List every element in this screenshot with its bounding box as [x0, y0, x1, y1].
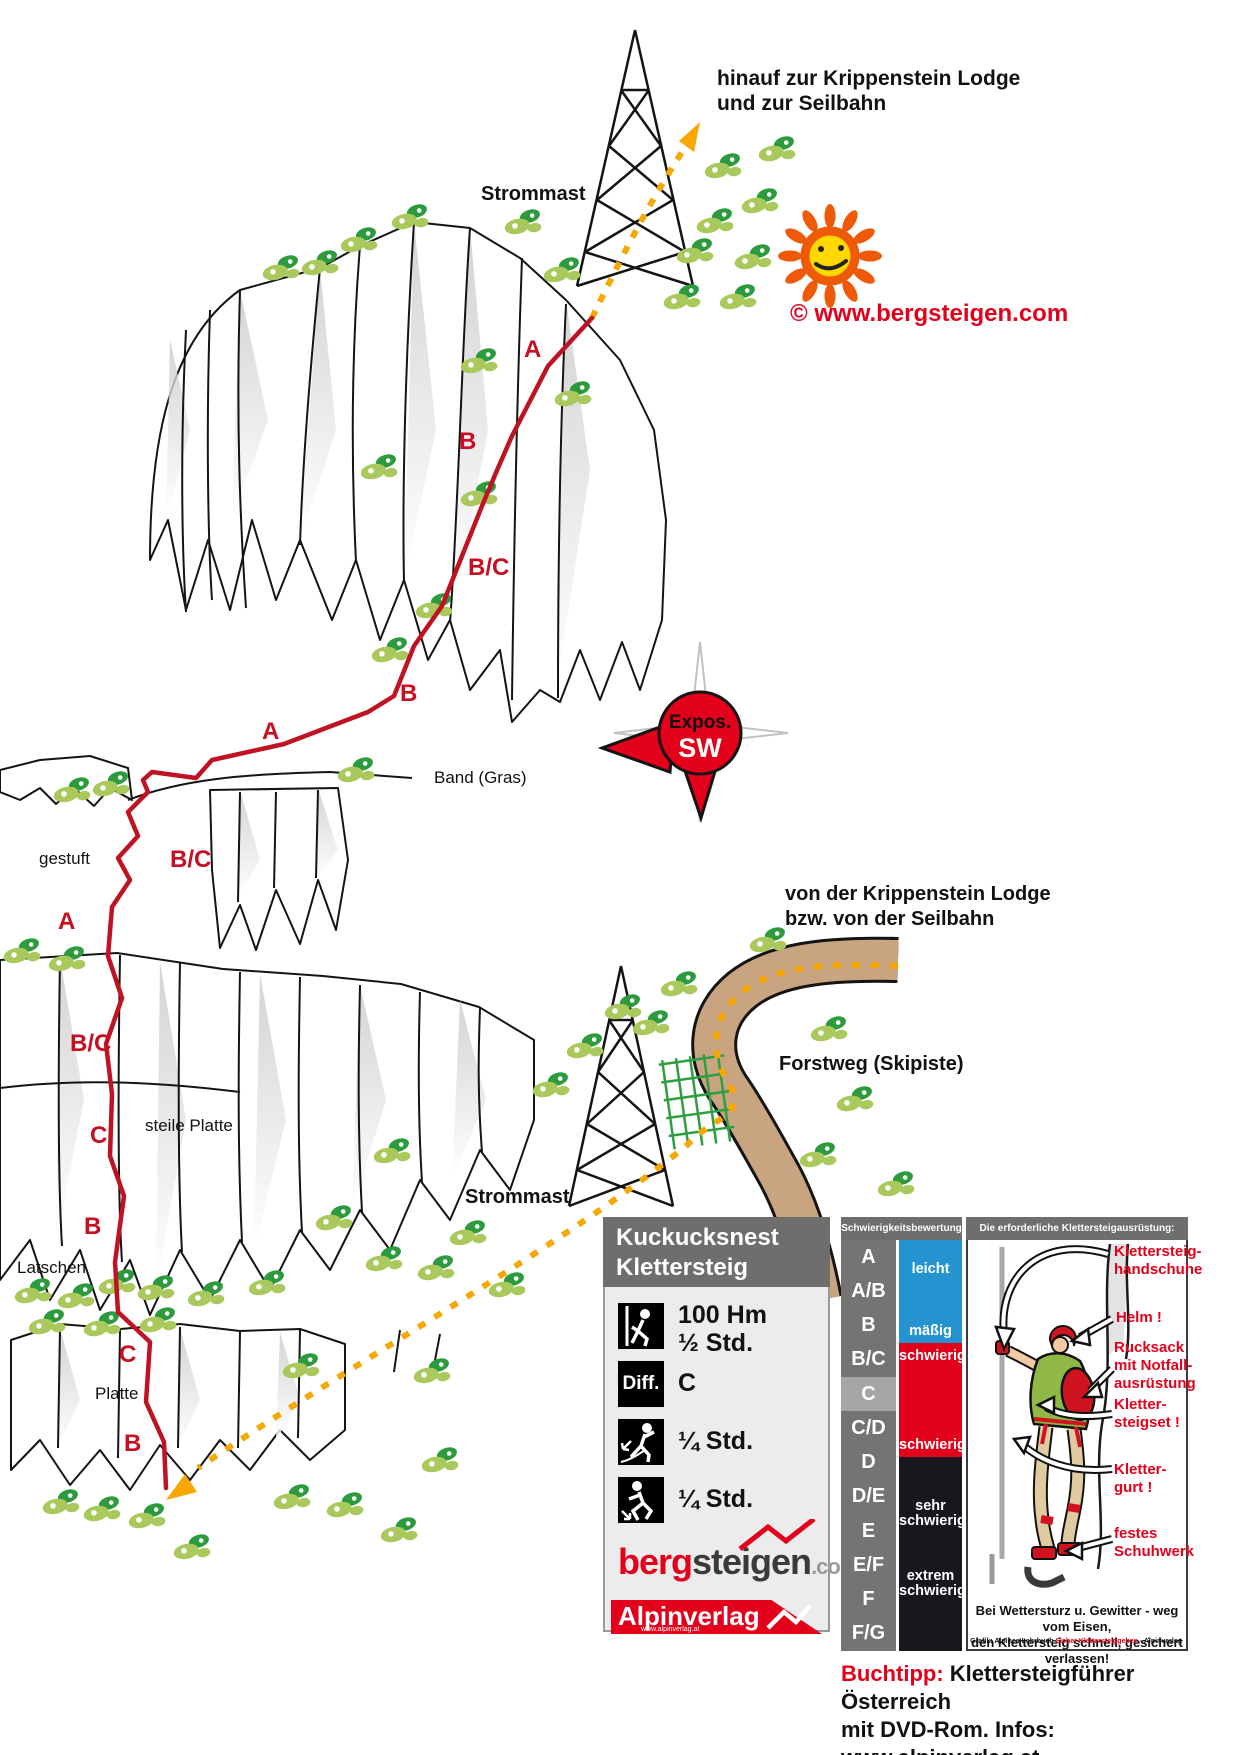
- equipment-callout: Klettersteig- handschuhe: [1114, 1243, 1202, 1279]
- alpinverlag-logo: Alpinverlag www.alpinverlag.at: [611, 1600, 822, 1634]
- compass-direction-value: SW: [659, 733, 741, 764]
- equipment-header: Die erforderliche Klettersteigausrüstung…: [966, 1217, 1188, 1240]
- route-grade-label: B: [459, 428, 476, 456]
- gestuft-label: gestuft: [39, 849, 90, 869]
- equipment-callout: Helm !: [1116, 1309, 1162, 1327]
- route-infobox: Kuckucksnest Klettersteig 100 Hm ½ Std. …: [603, 1217, 830, 1632]
- equipment-callout: Kletter- gurt !: [1114, 1461, 1167, 1497]
- scale-grade-d-e: D/E: [841, 1480, 896, 1514]
- climb-stats-icon: [618, 1303, 664, 1349]
- strommast-top-label: Strommast: [481, 183, 585, 206]
- route-grade-label: A: [262, 718, 279, 746]
- route-grade-label: A: [524, 336, 541, 364]
- stat-climb-value: 100 Hm ½ Std.: [678, 1301, 767, 1357]
- scale-grade-b: B: [841, 1309, 896, 1343]
- scale-band-extreme: sehr schwierig extrem schwierig: [899, 1457, 962, 1651]
- latschen-label: Latschen: [17, 1258, 86, 1278]
- book-tip-label: Buchtipp:: [841, 1661, 944, 1686]
- route-grade-label: B/C: [468, 554, 509, 582]
- bergsteigen-logo: bergsteigen.com: [618, 1541, 858, 1583]
- equipment-panel: Die erforderliche Klettersteigausrüstung…: [966, 1217, 1188, 1651]
- scale-grade-f: F: [841, 1583, 896, 1617]
- direction-top-label: hinauf zur Krippenstein Lodge und zur Se…: [717, 66, 1020, 116]
- stat-row-difficulty: Diff. C: [618, 1361, 818, 1409]
- steile-platte-label: steile Platte: [145, 1116, 233, 1136]
- copyright-text: © www.bergsteigen.com: [790, 300, 1068, 328]
- band-gras-label: Band (Gras): [434, 768, 527, 788]
- weather-warning: Bei Wettersturz u. Gewitter - weg vom Ei…: [970, 1603, 1184, 1667]
- compass-expos-label: Expos.: [659, 712, 741, 734]
- route-grade-label: B/C: [170, 846, 211, 874]
- scale-band-easy: leicht mäßig: [899, 1240, 962, 1343]
- scale-grade-d: D: [841, 1446, 896, 1480]
- stat-row-descent: ¼ Std.: [618, 1477, 818, 1525]
- route-grade-label: A: [58, 908, 75, 936]
- direction-mid-label: von der Krippenstein Lodge bzw. von der …: [785, 882, 1051, 932]
- scale-grade-a: A: [841, 1240, 896, 1274]
- equipment-callout: festes Schuhwerk: [1114, 1525, 1194, 1561]
- scale-grade-e: E: [841, 1514, 896, 1548]
- route-grade-label: B: [84, 1213, 101, 1241]
- topo-page: hinauf zur Krippenstein Lodge und zur Se…: [0, 0, 1246, 1755]
- scale-grade-e-f: E/F: [841, 1548, 896, 1582]
- difficulty-icon: Diff.: [618, 1361, 664, 1407]
- route-grade-label: B: [124, 1430, 141, 1458]
- equipment-callout: Rucksack mit Notfall- ausrüstung: [1114, 1339, 1196, 1393]
- stat-approach-value: ¼ Std.: [678, 1427, 753, 1455]
- forstweg-label: Forstweg (Skipiste): [779, 1053, 963, 1076]
- stat-row-climb: 100 Hm ½ Std.: [618, 1303, 818, 1351]
- climber-illustration: [968, 1242, 1186, 1649]
- scale-grade-a-b: A/B: [841, 1274, 896, 1308]
- stat-difficulty-value: C: [678, 1369, 696, 1397]
- route-grade-label: C: [119, 1341, 136, 1369]
- band-column: leicht mäßig schwierig schwierig sehr sc…: [899, 1240, 962, 1651]
- alpinverlag-mountains-icon: [766, 1602, 826, 1632]
- strommast-bottom-label: Strommast: [465, 1186, 569, 1209]
- scale-band-hard: schwierig schwierig: [899, 1343, 962, 1457]
- stat-row-approach: ¼ Std.: [618, 1419, 818, 1467]
- difficulty-scale-header: Schwierigkeitsbewertung: [841, 1217, 962, 1240]
- scale-grade-c: C: [841, 1377, 896, 1411]
- bergsteigen-logo-mountains-icon: [736, 1519, 826, 1553]
- route-infobox-title: Kuckucksnest Klettersteig: [603, 1217, 830, 1287]
- stat-descent-value: ¼ Std.: [678, 1485, 753, 1513]
- route-grade-label: B: [400, 680, 417, 708]
- grade-column: AA/BBB/CCC/DDD/EEE/FFF/G: [841, 1240, 896, 1651]
- platte-label: Platte: [95, 1384, 138, 1404]
- scale-grade-b-c: B/C: [841, 1343, 896, 1377]
- difficulty-scale-panel: Schwierigkeitsbewertung AA/BBB/CCC/DDD/E…: [841, 1217, 962, 1651]
- route-grade-label: C: [90, 1122, 107, 1150]
- approach-walk-icon: [618, 1419, 664, 1465]
- equipment-callout: Kletter- steigset !: [1114, 1396, 1180, 1432]
- book-tip: Buchtipp: Klettersteigführer Österreich …: [841, 1660, 1246, 1755]
- scale-grade-f-g: F/G: [841, 1617, 896, 1651]
- graphic-credit: Grafik: Alpines Lehrbuch Sicher Kletters…: [970, 1638, 1182, 1645]
- descent-walk-icon: [618, 1477, 664, 1523]
- route-grade-label: B/C: [70, 1030, 111, 1058]
- scale-grade-c-d: C/D: [841, 1411, 896, 1445]
- alpinverlag-url: www.alpinverlag.at: [641, 1626, 699, 1633]
